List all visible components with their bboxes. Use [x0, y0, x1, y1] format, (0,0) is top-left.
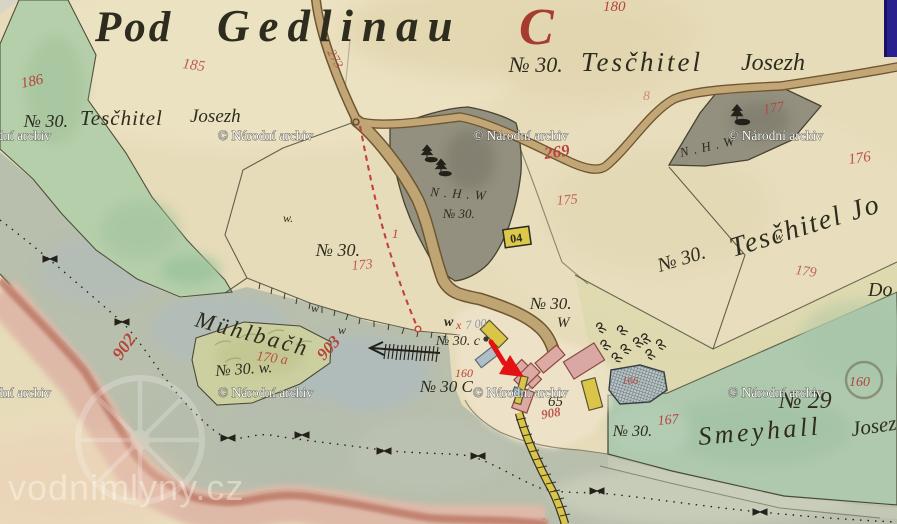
- svg-text:179: 179: [794, 263, 817, 281]
- svg-text:© Národní archiv: © Národní archiv: [473, 128, 568, 143]
- svg-text:8: 8: [643, 89, 650, 104]
- svg-text:№ 30.: № 30.: [315, 240, 360, 260]
- svg-text:x: x: [455, 318, 462, 332]
- svg-text:269: 269: [542, 141, 571, 164]
- svg-text:175: 175: [556, 192, 578, 209]
- svg-text:Josezh: Josezh: [741, 50, 805, 76]
- svg-text:© Národní archiv: © Národní archiv: [728, 385, 823, 400]
- svg-text:w: w: [338, 323, 346, 337]
- svg-text:w: w: [775, 229, 783, 243]
- svg-text:7 00: 7 00: [465, 316, 487, 332]
- svg-text:© Národní archiv: © Národní archiv: [0, 128, 51, 143]
- svg-text:№ 30.: № 30.: [529, 294, 572, 313]
- svg-text:© Národní archiv: © Národní archiv: [728, 128, 823, 143]
- svg-text:Gedlinau: Gedlinau: [217, 1, 462, 51]
- svg-text:160: 160: [455, 366, 473, 380]
- svg-text:173: 173: [351, 257, 373, 274]
- svg-text:167: 167: [657, 412, 680, 429]
- svg-text:№ 30.: № 30.: [442, 206, 475, 221]
- svg-text:vodnimlyny.cz: vodnimlyny.cz: [8, 467, 244, 508]
- svg-text:176: 176: [847, 149, 872, 168]
- svg-text:© Národní archiv: © Národní archiv: [218, 385, 313, 400]
- svg-text:160: 160: [849, 375, 870, 390]
- svg-text:1: 1: [392, 226, 399, 241]
- svg-text:© Národní archiv: © Národní archiv: [218, 128, 313, 143]
- svg-text:w: w: [311, 301, 319, 315]
- svg-text:№ 30. c: № 30. c: [435, 334, 481, 349]
- svg-text:Pod: Pod: [94, 4, 173, 51]
- svg-text:Tesčhitel: Tesčhitel: [581, 47, 703, 77]
- svg-text:166: 166: [622, 375, 639, 387]
- svg-text:Josezh: Josezh: [190, 106, 241, 127]
- svg-text:W: W: [557, 315, 571, 331]
- svg-text:180: 180: [603, 0, 626, 15]
- svg-text:№ 30.: № 30.: [612, 423, 652, 440]
- svg-text:© Národní archiv: © Národní archiv: [0, 385, 51, 400]
- svg-text:w: w: [444, 315, 454, 330]
- svg-text:Tesčhitel: Tesčhitel: [80, 106, 163, 130]
- svg-text:04: 04: [509, 230, 523, 246]
- svg-text:185: 185: [181, 56, 206, 75]
- svg-text:Do: Do: [867, 279, 892, 301]
- svg-text:w.: w.: [283, 211, 293, 225]
- svg-text:C: C: [519, 0, 555, 56]
- svg-text:© Národní archiv: © Národní archiv: [473, 385, 568, 400]
